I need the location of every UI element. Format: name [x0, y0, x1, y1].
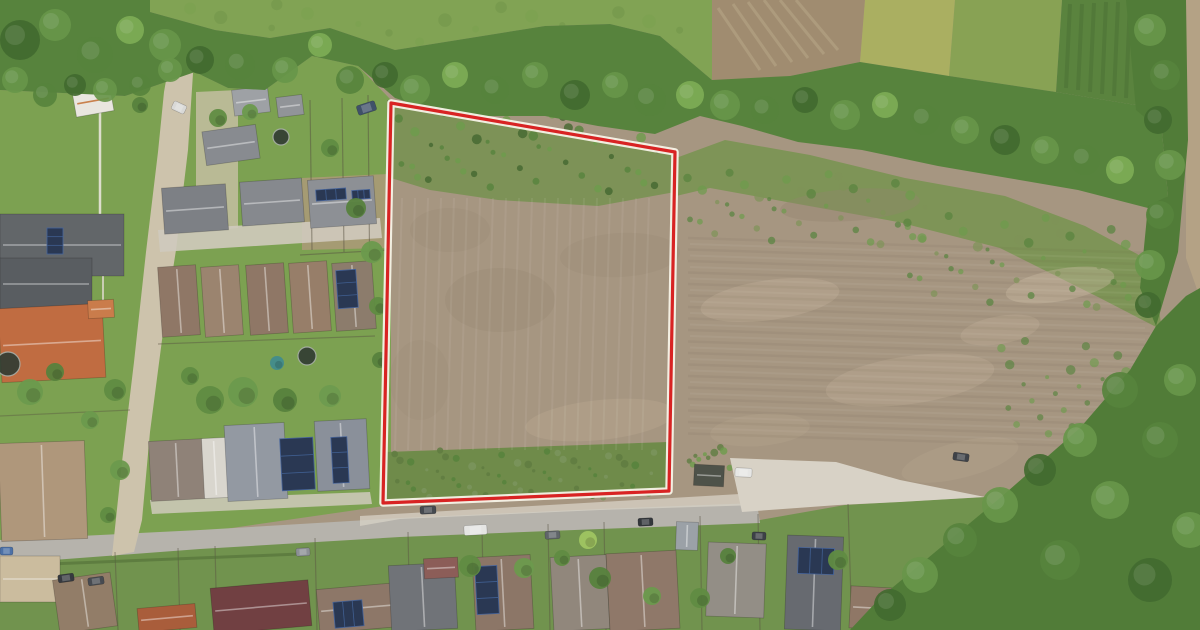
aerial-photo — [0, 0, 1200, 630]
aerial-photo-frame — [0, 0, 1200, 630]
haze-overlay — [0, 0, 1200, 630]
